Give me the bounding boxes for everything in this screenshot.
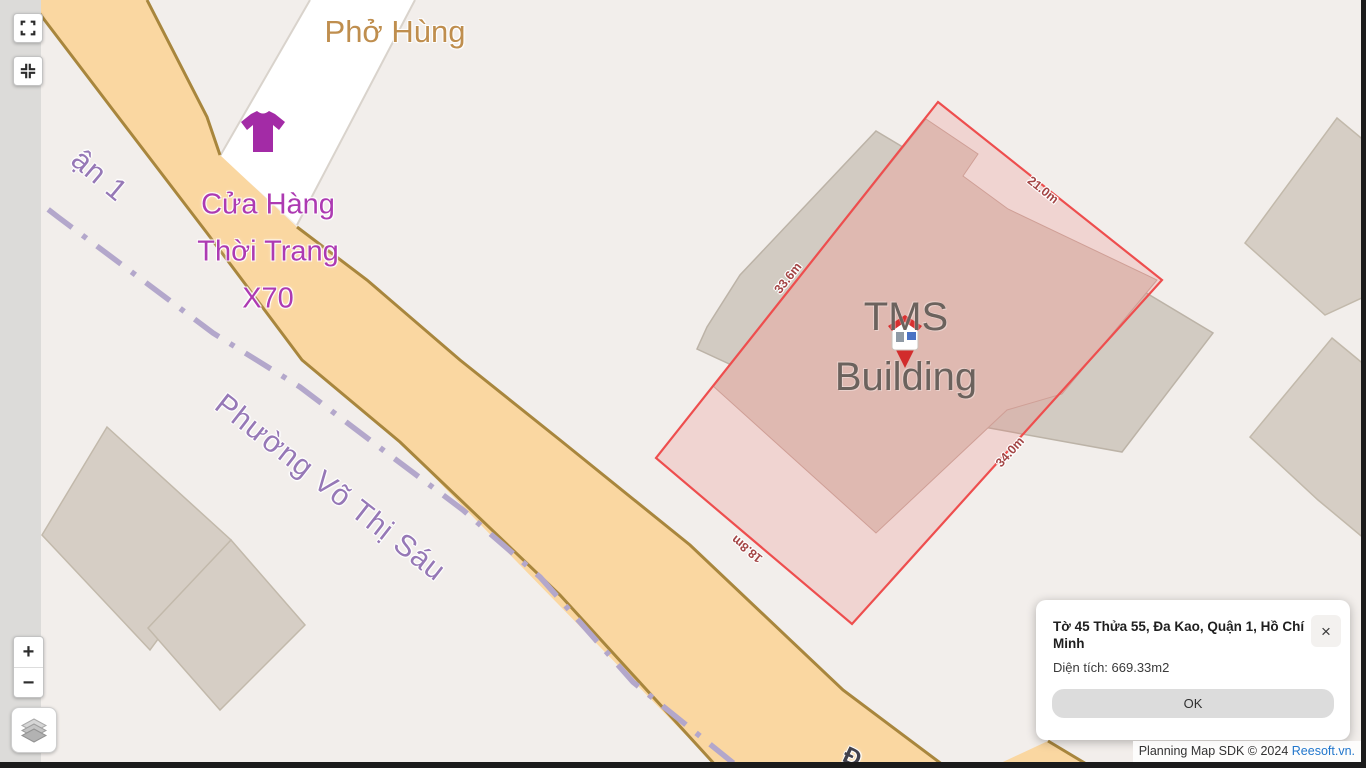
fullscreen-icon	[19, 19, 37, 37]
zoom-in-button[interactable]: +	[14, 637, 43, 668]
close-icon: ×	[1321, 623, 1331, 640]
building-block	[1245, 118, 1366, 315]
attribution-text: Planning Map SDK © 2024	[1139, 744, 1292, 758]
parcel-area-text: Diện tích: 669.33m2	[1053, 660, 1169, 675]
zoom-control: + −	[13, 636, 44, 698]
layers-icon	[20, 716, 48, 744]
layers-button[interactable]	[11, 707, 57, 753]
building-block	[1250, 338, 1366, 540]
parcel-info-popup: Tờ 45 Thửa 55, Đa Kao, Quận 1, Hồ Chí Mi…	[1036, 600, 1350, 740]
exit-fullscreen-button[interactable]	[13, 56, 43, 86]
map-viewport[interactable]: Phở Hùng Cửa Hàng Thời Trang X70 Phường …	[0, 0, 1366, 768]
window-edge-bottom	[0, 762, 1366, 768]
attribution-link[interactable]: Reesoft.vn.	[1292, 744, 1355, 758]
popup-title: Tờ 45 Thửa 55, Đa Kao, Quận 1, Hồ Chí Mi…	[1053, 618, 1308, 652]
house-marker-icon[interactable]	[886, 314, 924, 370]
attribution: Planning Map SDK © 2024 Reesoft.vn.	[1133, 741, 1361, 762]
fullscreen-button[interactable]	[13, 13, 43, 43]
window-edge-right	[1361, 0, 1366, 768]
exit-fullscreen-icon	[19, 62, 37, 80]
zoom-out-button[interactable]: −	[14, 668, 43, 698]
ok-button[interactable]: OK	[1052, 689, 1334, 718]
close-button[interactable]: ×	[1311, 615, 1341, 647]
